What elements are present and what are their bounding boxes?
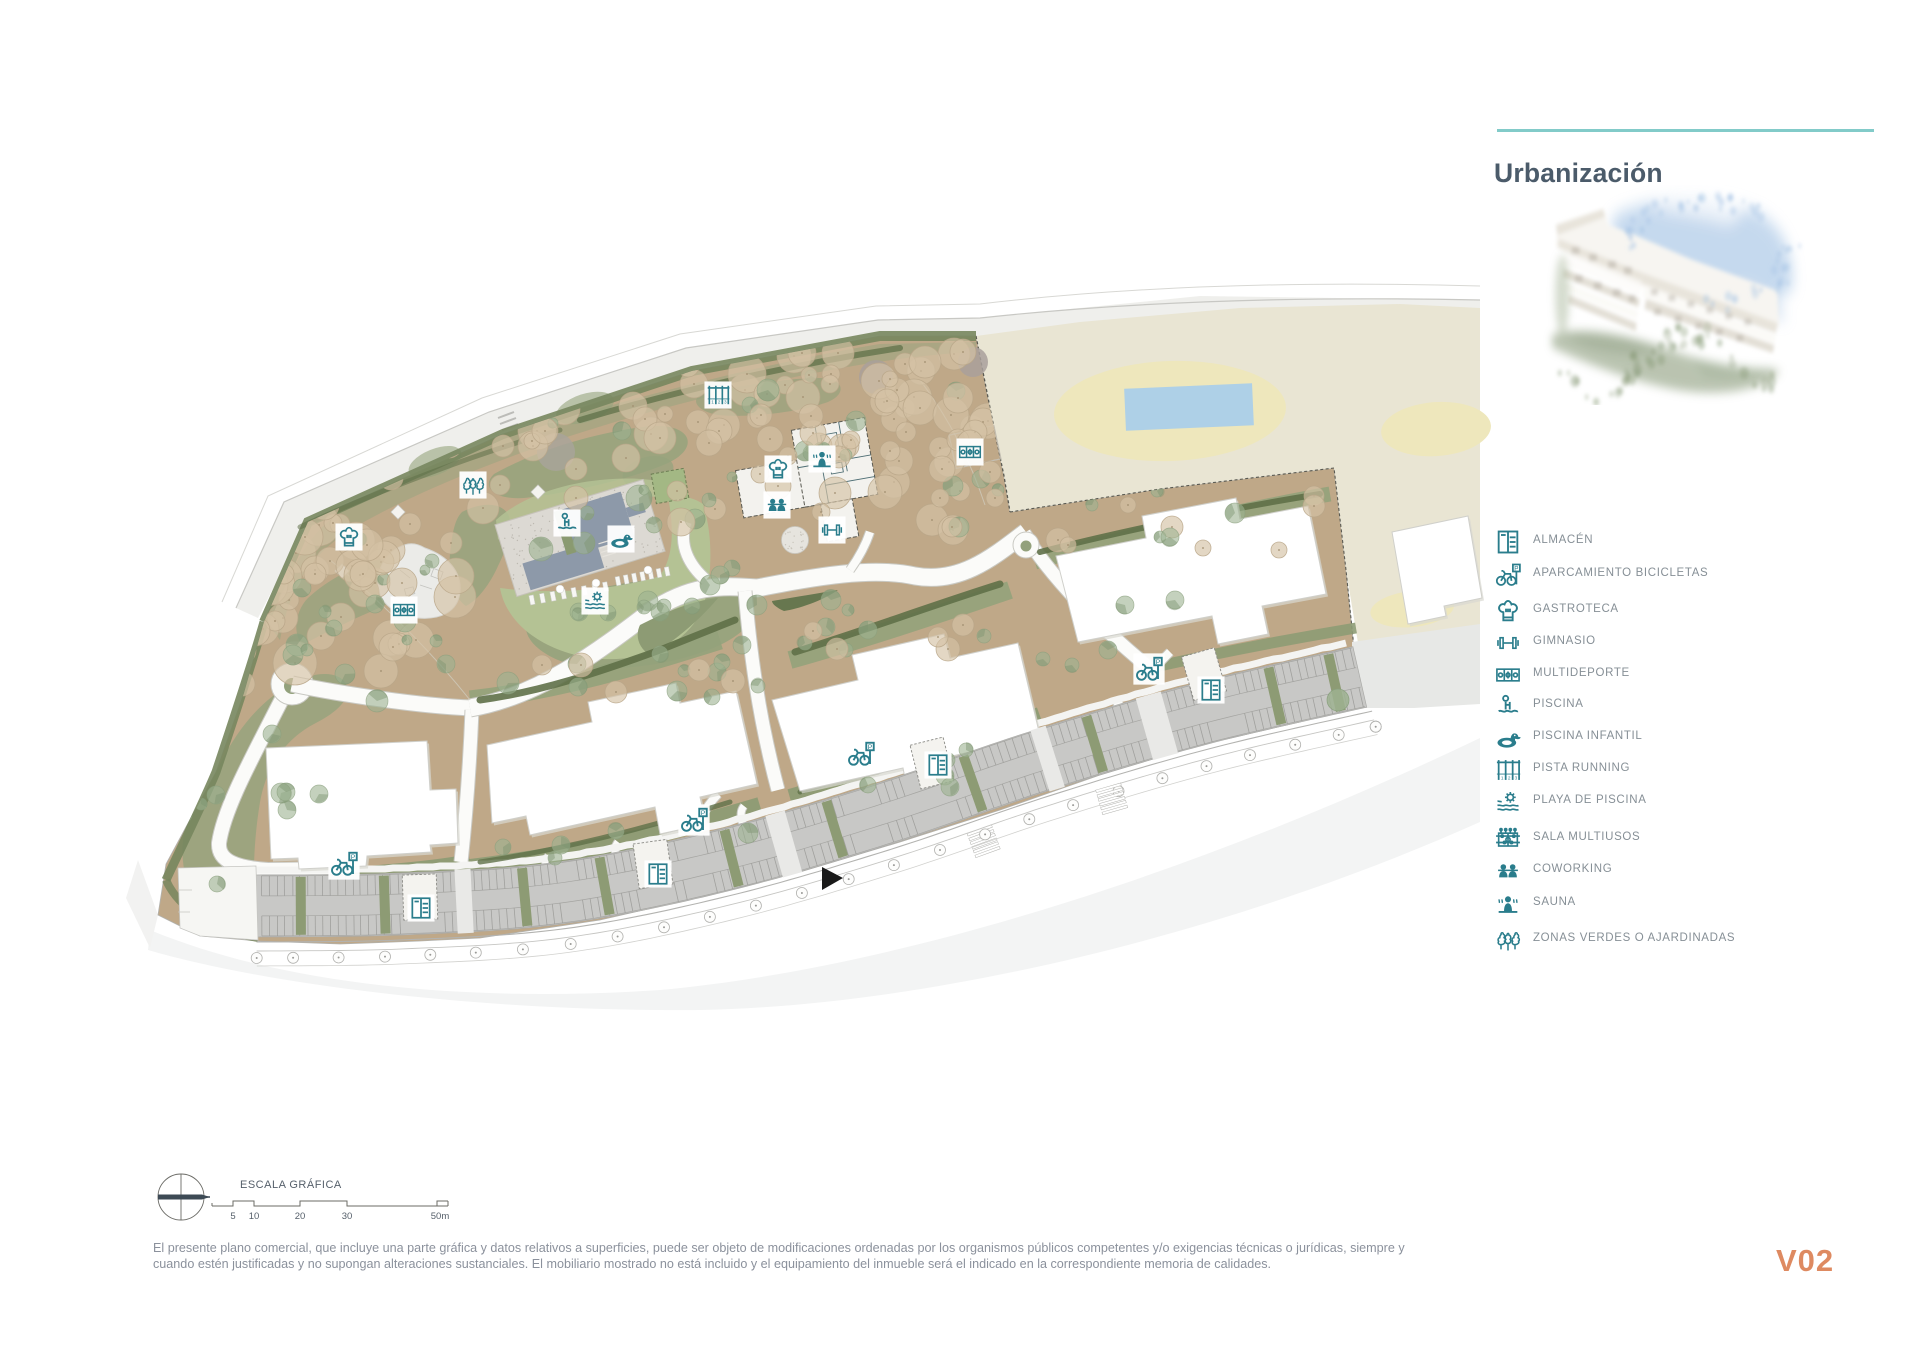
svg-text:P: P bbox=[1514, 565, 1518, 572]
svg-text:3: 3 bbox=[1515, 775, 1518, 780]
svg-text:P: P bbox=[1156, 659, 1161, 666]
svg-text:20: 20 bbox=[295, 1211, 306, 1222]
svg-text:5: 5 bbox=[230, 1211, 235, 1222]
svg-text:50m: 50m bbox=[431, 1211, 450, 1222]
svg-text:10: 10 bbox=[249, 1211, 260, 1222]
svg-text:P: P bbox=[868, 744, 873, 751]
svg-text:ESCALA GRÁFICA: ESCALA GRÁFICA bbox=[240, 1178, 342, 1191]
svg-text:P: P bbox=[351, 854, 356, 861]
svg-text:30: 30 bbox=[342, 1211, 353, 1222]
svg-text:1: 1 bbox=[1501, 775, 1504, 780]
svg-text:P: P bbox=[701, 810, 706, 817]
svg-text:2: 2 bbox=[1508, 775, 1511, 780]
